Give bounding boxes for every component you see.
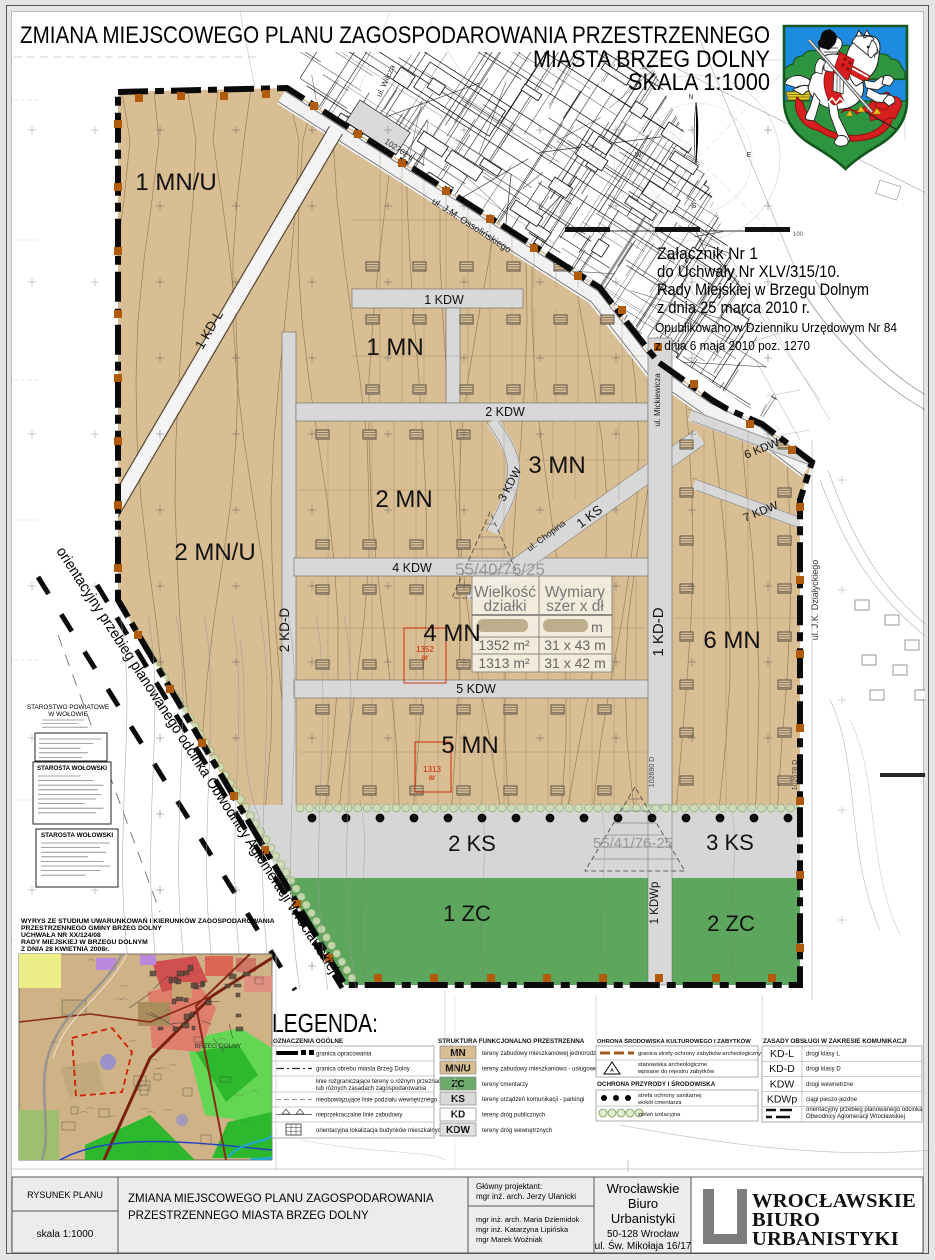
- svg-text:mgr inż. arch. Jerzy Ulanicki: mgr inż. arch. Jerzy Ulanicki: [476, 1192, 576, 1201]
- svg-text:Rady Miejskiej w Brzegu Dolnym: Rady Miejskiej w Brzegu Dolnym: [657, 281, 869, 299]
- svg-text:tereny dróg wewnętrznych: tereny dróg wewnętrznych: [482, 1128, 552, 1134]
- svg-text:zieleń izolacyjna: zieleń izolacyjna: [638, 1112, 681, 1118]
- svg-text:ul. Św. Mikołaja 16/17: ul. Św. Mikołaja 16/17: [595, 1239, 692, 1252]
- svg-text:1 KDW: 1 KDW: [424, 293, 464, 307]
- svg-text:ul. Mickiewicza: ul. Mickiewicza: [653, 373, 662, 427]
- svg-text:Urbanistyki: Urbanistyki: [611, 1211, 675, 1226]
- svg-text:55/41/76-25: 55/41/76-25: [593, 835, 673, 852]
- svg-text:szer x dł: szer x dł: [546, 598, 604, 615]
- svg-text:drogi wewnetrzne: drogi wewnetrzne: [806, 1082, 854, 1088]
- svg-text:do Uchwały Nr XLV/315/10.: do Uchwały Nr XLV/315/10.: [657, 263, 840, 281]
- svg-text:tereny zabudowy mieszkaniowo -: tereny zabudowy mieszkaniowo - usługowej: [482, 1066, 599, 1072]
- svg-text:KD-L: KD-L: [770, 1048, 794, 1060]
- svg-text:2 KD-D: 2 KD-D: [277, 608, 292, 653]
- svg-text:ZMIANA MIEJSCOWEGO PLANU ZAGO: ZMIANA MIEJSCOWEGO PLANU ZAGOSPODAROWANI…: [20, 22, 770, 49]
- svg-text:BRZEG DOLNY: BRZEG DOLNY: [195, 1043, 242, 1050]
- svg-text:KS: KS: [451, 1094, 465, 1105]
- svg-text:2 ZC: 2 ZC: [707, 911, 755, 936]
- svg-text:3 KS: 3 KS: [706, 830, 754, 855]
- svg-text:Z DNIA 28 KWIETNIA 2008r.: Z DNIA 28 KWIETNIA 2008r.: [21, 946, 109, 953]
- svg-text:stanowiska archeologiczne: stanowiska archeologiczne: [638, 1062, 707, 1068]
- svg-text:E: E: [747, 152, 752, 159]
- svg-text:URBANISTYKI: URBANISTYKI: [752, 1228, 899, 1250]
- svg-text:102690 D: 102690 D: [649, 757, 656, 787]
- svg-text:tereny zabudowy mieszkaniowej: tereny zabudowy mieszkaniowej jednorodzi…: [482, 1051, 609, 1057]
- svg-text:mgr inż. Katarzyna Lipińska: mgr inż. Katarzyna Lipińska: [476, 1225, 569, 1234]
- svg-text:wokół cmentarza: wokół cmentarza: [637, 1100, 682, 1106]
- svg-text:WYRYS ZE STUDIUM UWARUNKOWAŃ I: WYRYS ZE STUDIUM UWARUNKOWAŃ I KIERUNKÓW…: [21, 916, 275, 925]
- svg-text:31 x 43 m: 31 x 43 m: [544, 637, 605, 653]
- svg-text:100: 100: [793, 232, 804, 238]
- svg-text:nieobowiązujące linie podziału: nieobowiązujące linie podziału wewnętrzn…: [316, 1098, 438, 1104]
- svg-text:LEGENDA:: LEGENDA:: [272, 1008, 378, 1038]
- svg-text:ZMIANA MIEJSCOWEGO PLANU ZAGOS: ZMIANA MIEJSCOWEGO PLANU ZAGOSPODAROWANI…: [128, 1193, 434, 1205]
- svg-text:granica opracowania: granica opracowania: [316, 1052, 372, 1058]
- svg-text:tereny dróg publicznych: tereny dróg publicznych: [482, 1113, 545, 1119]
- svg-text:KDWp: KDWp: [767, 1094, 797, 1106]
- svg-text:N: N: [688, 94, 693, 101]
- svg-text:m: m: [591, 619, 603, 635]
- svg-text:orientacyjny przebieg planowan: orientacyjny przebieg planowanego odcink…: [806, 1107, 923, 1113]
- svg-text:1 ZC: 1 ZC: [443, 901, 491, 926]
- svg-text:STRUKTURA FUNKCJONALNO PRZESTR: STRUKTURA FUNKCJONALNO PRZESTRZENNA: [438, 1038, 585, 1045]
- svg-text:linie rozgraniczające tereny o: linie rozgraniczające tereny o różnym pr…: [316, 1079, 455, 1085]
- svg-text:ar: ar: [421, 653, 428, 662]
- svg-text:1 MN/U: 1 MN/U: [135, 169, 216, 196]
- svg-text:MN: MN: [450, 1048, 466, 1059]
- svg-text:PRZESTRZENNEGO GMINY BRZEG DOL: PRZESTRZENNEGO GMINY BRZEG DOLNY: [21, 925, 162, 932]
- svg-text:UCHWAŁA NR XX/124/08: UCHWAŁA NR XX/124/08: [21, 932, 101, 939]
- svg-text:5 KDW: 5 KDW: [456, 682, 496, 696]
- svg-text:ar: ar: [428, 773, 435, 782]
- svg-text:granica strefy ochrony zabytkó: granica strefy ochrony zabytków archeolo…: [638, 1051, 767, 1057]
- svg-text:STAROSTWO POWIATOWE: STAROSTWO POWIATOWE: [27, 704, 109, 711]
- svg-text:mgr inż. arch. Maria Dziemidok: mgr inż. arch. Maria Dziemidok: [476, 1215, 580, 1224]
- svg-text:ciągi pieszo-jezdne: ciągi pieszo-jezdne: [806, 1097, 858, 1103]
- svg-text:55/40/76/25: 55/40/76/25: [455, 560, 545, 579]
- svg-text:OCHRONA PRZYRODY I ŚRODOWISKA: OCHRONA PRZYRODY I ŚRODOWISKA: [597, 1079, 716, 1088]
- svg-text:tereny urządzeń komunikacji -: tereny urządzeń komunikacji - parkingi: [482, 1097, 584, 1103]
- svg-text:5 MN: 5 MN: [441, 732, 498, 759]
- svg-text:ZC: ZC: [451, 1079, 464, 1090]
- svg-text:SKALA 1:1000: SKALA 1:1000: [628, 69, 770, 96]
- svg-text:granica obrebu miasta Brzeg Do: granica obrebu miasta Brzeg Dolny: [316, 1067, 410, 1073]
- svg-text:Wrocławskie: Wrocławskie: [607, 1181, 680, 1196]
- svg-text:Opublikowano w Dzienniku Urzęd: Opublikowano w Dzienniku Urzędowym Nr 84: [655, 320, 897, 335]
- svg-text:KD-D: KD-D: [769, 1063, 795, 1075]
- svg-text:z dnia 25 marca 2010 r.: z dnia 25 marca 2010 r.: [657, 299, 810, 317]
- svg-text:lub różnych zasadach zagospoda: lub różnych zasadach zagospodarowania: [316, 1086, 427, 1092]
- svg-text:STAROSTA WOŁOWSKI: STAROSTA WOŁOWSKI: [37, 765, 107, 772]
- svg-text:1 KD-D: 1 KD-D: [650, 607, 667, 656]
- svg-text:działki: działki: [483, 598, 526, 615]
- svg-text:mgr Marek Woźniak: mgr Marek Woźniak: [476, 1235, 543, 1244]
- svg-text:nieprzekraczalne linie zabudow: nieprzekraczalne linie zabudowy: [316, 1113, 402, 1119]
- svg-text:2 MN: 2 MN: [375, 486, 432, 513]
- svg-text:3 MN: 3 MN: [528, 452, 585, 479]
- svg-text:OHRONA ŚRODOWISKA KULTUROWEGO: OHRONA ŚRODOWISKA KULTUROWEGO I ZABYTKÓW: [597, 1037, 751, 1045]
- svg-text:OZNACZENIA OGÓLNE: OZNACZENIA OGÓLNE: [273, 1036, 343, 1045]
- svg-text:1352 m²: 1352 m²: [478, 637, 530, 653]
- svg-text:drogi klasy D: drogi klasy D: [806, 1067, 841, 1073]
- svg-text:RADY MIEJSKIEJ W BRZEGU DOLNYM: RADY MIEJSKIEJ W BRZEGU DOLNYM: [21, 939, 148, 946]
- svg-text:wpisane do rejestru zabytków: wpisane do rejestru zabytków: [637, 1069, 715, 1075]
- svg-text:S: S: [692, 203, 697, 210]
- svg-text:KDW: KDW: [770, 1078, 795, 1090]
- svg-text:2 KDW: 2 KDW: [485, 405, 525, 419]
- svg-text:skala 1:1000: skala 1:1000: [37, 1229, 94, 1240]
- svg-text:1313 m²: 1313 m²: [478, 655, 530, 671]
- svg-text:RYSUNEK PLANU: RYSUNEK PLANU: [27, 1190, 103, 1200]
- svg-text:2 KS: 2 KS: [448, 831, 496, 856]
- svg-text:4 KDW: 4 KDW: [392, 561, 432, 575]
- svg-text:1 MN: 1 MN: [366, 334, 423, 361]
- svg-text:6 MN: 6 MN: [703, 627, 760, 654]
- svg-text:STAROSTA WOŁOWSKI: STAROSTA WOŁOWSKI: [41, 832, 114, 839]
- svg-text:tereny cmentarzy: tereny cmentarzy: [482, 1082, 528, 1088]
- svg-text:50-128 Wrocław: 50-128 Wrocław: [607, 1229, 680, 1240]
- svg-text:orientacyjna lokalizacja budyn: orientacyjna lokalizacja budynków mieszk…: [316, 1128, 444, 1134]
- svg-text:PRZESTRZENNEGO MIASTA BRZEG DO: PRZESTRZENNEGO MIASTA BRZEG DOLNY: [128, 1210, 369, 1222]
- svg-text:Biuro: Biuro: [628, 1196, 658, 1211]
- svg-text:Załącznik Nr 1: Załącznik Nr 1: [657, 245, 758, 263]
- svg-text:KD: KD: [451, 1110, 465, 1121]
- svg-text:W: W: [635, 152, 642, 159]
- svg-text:MN/U: MN/U: [445, 1063, 471, 1074]
- svg-text:strefa ochrony sanitarnej: strefa ochrony sanitarnej: [638, 1093, 701, 1099]
- svg-text:Obwodnicy Aglomeracji Wrocławs: Obwodnicy Aglomeracji Wrocławskiej: [806, 1114, 905, 1120]
- svg-text:2 MN/U: 2 MN/U: [174, 539, 255, 566]
- svg-text:ZASADY OBSŁUGI W ZAKRESIE KOMU: ZASADY OBSŁUGI W ZAKRESIE KOMUNIKACJI: [763, 1038, 907, 1045]
- svg-text:1 KDWp: 1 KDWp: [649, 882, 661, 925]
- svg-text:4 MN: 4 MN: [423, 620, 480, 647]
- svg-text:Główny projektant:: Główny projektant:: [476, 1182, 542, 1191]
- svg-text:z dnia 6 maja 2010 poz. 1270: z dnia 6 maja 2010 poz. 1270: [655, 338, 810, 353]
- svg-text:KDW: KDW: [446, 1125, 470, 1136]
- svg-text:W WOŁOWIE: W WOŁOWIE: [48, 711, 87, 718]
- svg-text:31 x 42 m: 31 x 42 m: [544, 655, 605, 671]
- svg-text:drogi klasy L: drogi klasy L: [806, 1052, 840, 1058]
- svg-text:ul. J.K. Działyckiego: ul. J.K. Działyckiego: [810, 560, 820, 641]
